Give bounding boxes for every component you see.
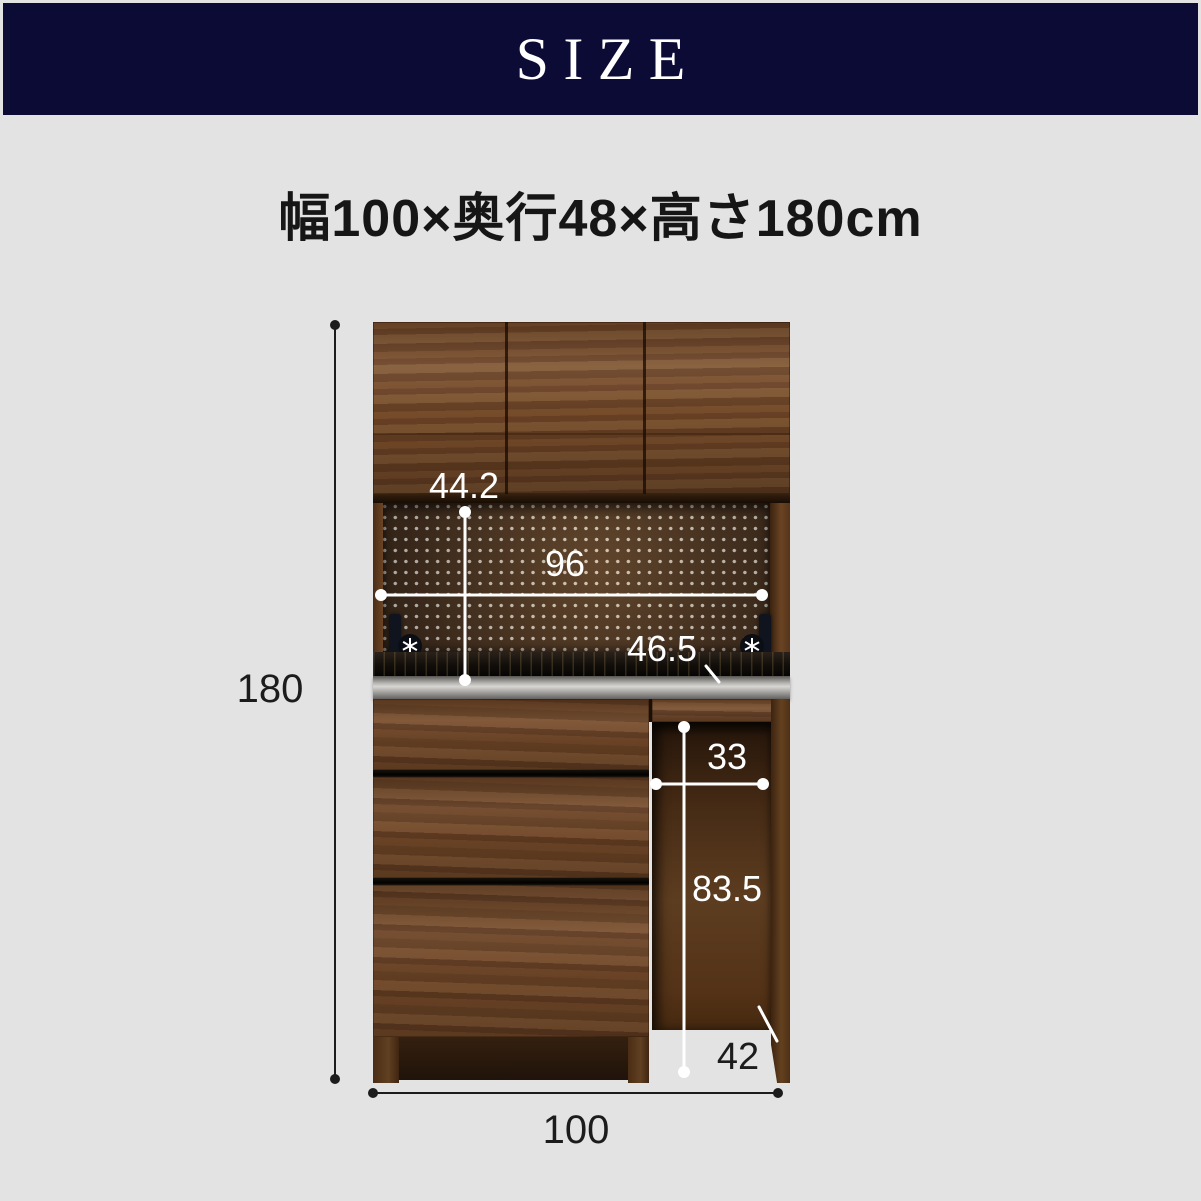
drawer-handle-2 [373,878,649,885]
door-grain-joint [373,433,790,435]
section-header: SIZE [3,3,1198,115]
base-kick-panel [381,1037,641,1080]
desk-drawer [652,699,790,722]
dim-label-hutch-width: 96 [485,542,645,586]
drawer-3 [373,885,649,1037]
dim-label-counter-depth: 46.5 [582,627,742,671]
section-title: SIZE [516,25,700,94]
door-gap-right [643,322,646,494]
dim-label-total-height: 180 [190,667,350,711]
right-foot [628,1037,649,1083]
left-foot [373,1037,399,1083]
dim-label-knee-height: 83.5 [647,867,807,911]
dim-label-total-width: 100 [496,1108,656,1152]
niche-right-wall [770,503,790,652]
niche-left-wall [373,503,383,652]
size-diagram-page: SIZE 幅100×奥行48×高さ180cm [0,0,1201,1201]
drawer-2 [373,777,649,878]
dim-label-hutch-height: 44.2 [384,464,544,508]
dim-line-total-width [369,1089,783,1098]
dim-label-base-depth: 42 [658,1035,818,1079]
drawer-handle-1 [373,770,649,777]
dimensions-subtitle: 幅100×奥行48×高さ180cm [0,176,1201,251]
counter-steel-edge [373,676,790,699]
drawer-1 [373,699,649,770]
dim-label-knee-width: 33 [647,735,807,779]
